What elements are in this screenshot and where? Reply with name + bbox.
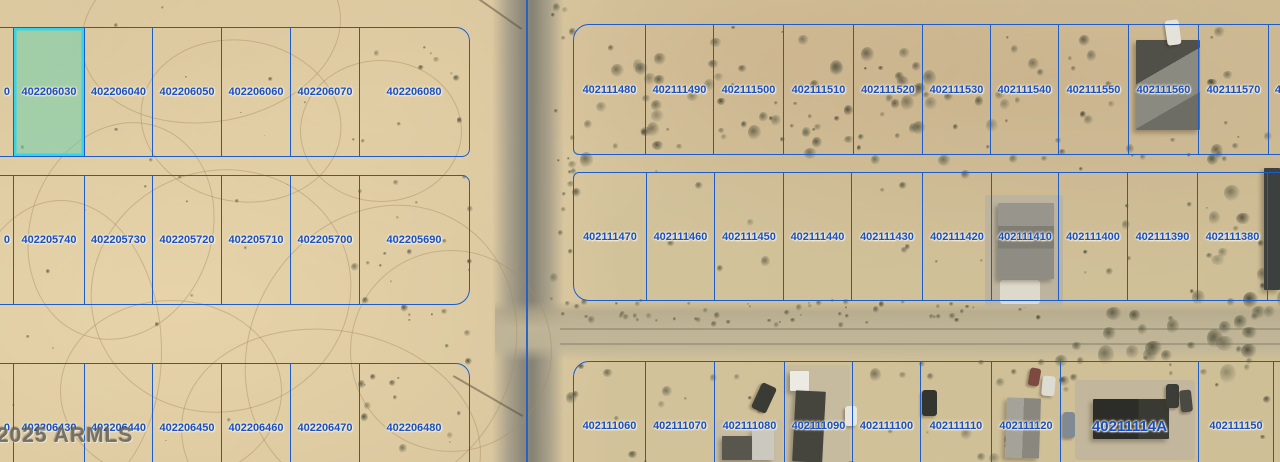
parcel-label: 402111380 <box>1198 231 1267 243</box>
parcel-402111550[interactable]: 402111550 <box>1059 25 1129 154</box>
vegetation <box>551 13 554 17</box>
vegetation <box>635 301 641 307</box>
parcel-402206060[interactable]: 402206060 <box>222 28 291 156</box>
parcel-label: 4 <box>1269 84 1280 96</box>
vegetation <box>561 207 566 212</box>
parcel-map: 0402206030402206040402206050402206060402… <box>0 0 1280 462</box>
parcel-402111560[interactable]: 402111560 <box>1129 25 1199 154</box>
parcel-label: 402205740 <box>14 234 84 246</box>
vegetation <box>623 314 629 320</box>
parcel-label: 0 <box>0 86 13 98</box>
parcel-402111110[interactable]: 402111110 <box>921 362 992 462</box>
vegetation <box>615 302 618 305</box>
vegetation <box>845 314 850 318</box>
vegetation <box>879 301 885 307</box>
parcel-402111490[interactable]: 402111490 <box>646 25 714 154</box>
vegetation <box>965 305 970 308</box>
vegetation <box>779 321 781 324</box>
vegetation <box>1138 324 1148 335</box>
vegetation <box>1161 350 1172 361</box>
parcel[interactable] <box>1274 362 1280 462</box>
vegetation <box>749 305 751 308</box>
parcel-label: 402111430 <box>852 231 922 243</box>
parcel-block-west-middle: 0402205740402205730402205720402205710402… <box>0 175 470 305</box>
parcel-label: 402206030 <box>14 86 84 98</box>
vegetation <box>726 320 730 325</box>
parcel-label: 402111080 <box>715 420 784 432</box>
parcel-label: 402206060 <box>222 86 290 98</box>
parcel-label: 402205720 <box>153 234 221 246</box>
parcel-402206070[interactable]: 402206070 <box>291 28 360 156</box>
parcel-label: 402111540 <box>991 84 1058 96</box>
vegetation <box>1167 319 1180 334</box>
parcel-402111440[interactable]: 402111440 <box>784 173 852 300</box>
parcel-402111510[interactable]: 402111510 <box>784 25 854 154</box>
parcel-label: 402111560 <box>1129 84 1198 96</box>
parcel-402111080[interactable]: 402111080 <box>715 362 785 462</box>
parcel-402111530[interactable]: 402111530 <box>923 25 991 154</box>
parcel-label: 402111070 <box>646 420 714 432</box>
parcel-402206450[interactable]: 402206450 <box>153 364 222 462</box>
vegetation <box>568 161 577 168</box>
parcel-label: 402206460 <box>222 422 290 434</box>
vegetation <box>1168 316 1174 321</box>
vegetation <box>673 317 677 320</box>
vegetation <box>1219 321 1231 334</box>
vegetation <box>838 312 842 316</box>
parcel-label: 402206480 <box>360 422 468 434</box>
selected-parcel[interactable]: 402206030 <box>14 28 85 156</box>
vegetation <box>52 347 54 349</box>
parcel-label: 402111490 <box>646 84 713 96</box>
parcel-402111500[interactable]: 402111500 <box>714 25 784 154</box>
vegetation <box>401 304 409 312</box>
parcel-label: 402205710 <box>222 234 290 246</box>
parcel-402111470[interactable]: 402111470 <box>574 173 647 300</box>
parcel-label: 402111450 <box>715 231 783 243</box>
vegetation <box>1216 336 1234 351</box>
parcel-label: 402111410 <box>992 231 1058 243</box>
vegetation <box>155 322 160 327</box>
vegetation <box>161 6 164 9</box>
parcel-402111450[interactable]: 402111450 <box>715 173 784 300</box>
vegetation <box>1009 155 1018 163</box>
parcel[interactable] <box>1268 173 1280 300</box>
parcel-label: 402205690 <box>360 234 468 246</box>
parcel-402111480[interactable]: 402111480 <box>574 25 646 154</box>
parcel-402111390[interactable]: 402111390 <box>1128 173 1198 300</box>
vegetation <box>562 192 566 196</box>
parcel-label: 0 <box>0 234 13 246</box>
parcel-402111520[interactable]: 402111520 <box>854 25 923 154</box>
parcel-402111570[interactable]: 402111570 <box>1199 25 1269 154</box>
parcel-402206460[interactable]: 402206460 <box>222 364 291 462</box>
vegetation <box>554 109 557 112</box>
parcel-label: 402206070 <box>291 86 359 98</box>
vegetation <box>464 330 472 336</box>
vegetation <box>865 321 869 325</box>
parcel-402205700[interactable]: 402205700 <box>291 176 360 304</box>
parcel-402111430[interactable]: 402111430 <box>852 173 923 300</box>
road-tire-line <box>560 343 1280 345</box>
vegetation <box>1036 315 1041 320</box>
parcel-label: 402111570 <box>1199 84 1268 96</box>
parcel-label: 402111460 <box>647 231 714 243</box>
vegetation <box>1103 327 1115 340</box>
vegetation <box>431 313 434 316</box>
vegetation <box>1106 307 1122 320</box>
parcel-402111540[interactable]: 402111540 <box>991 25 1059 154</box>
parcel-label: 402111110 <box>921 420 991 432</box>
vegetation <box>796 304 803 311</box>
parcel-402111070[interactable]: 402111070 <box>646 362 715 462</box>
parcel-label: 402111530 <box>923 84 990 96</box>
parcel-label: 402111060 <box>574 420 645 432</box>
parcel-label: 402111470 <box>574 231 646 243</box>
parcel-4[interactable]: 4 <box>1269 25 1280 154</box>
vegetation <box>565 301 569 306</box>
parcel-label: 402206050 <box>153 86 221 98</box>
parcel-label: 402206450 <box>153 422 221 434</box>
vegetation <box>1072 342 1082 349</box>
parcel-label: 402111100 <box>853 420 920 432</box>
vegetation <box>574 304 580 309</box>
parcel-402205690[interactable]: 402205690 <box>360 176 468 304</box>
parcel-label: 402205730 <box>85 234 152 246</box>
parcel-label: 402206040 <box>85 86 152 98</box>
parcel-block-east-bottom: 4021110604021110704021110804021110904021… <box>573 361 1280 462</box>
vegetation <box>1241 344 1256 358</box>
vegetation <box>696 317 701 323</box>
parcel-402111400[interactable]: 402111400 <box>1059 173 1128 300</box>
parcel-label: 402111480 <box>574 84 645 96</box>
vegetation <box>557 159 560 163</box>
parcel-402111420[interactable]: 402111420 <box>923 173 992 300</box>
parcel-402205730[interactable]: 402205730 <box>85 176 153 304</box>
parcel-label: 402111400 <box>1059 231 1127 243</box>
parcel-label: 402111520 <box>854 84 922 96</box>
parcel-0[interactable]: 0 <box>0 28 14 156</box>
parcel-402205710[interactable]: 402205710 <box>222 176 291 304</box>
vegetation <box>839 324 843 327</box>
parcel-label: 402111150 <box>1199 420 1273 432</box>
parcel-label: 402205700 <box>291 234 359 246</box>
parcel-label: 402111420 <box>923 231 991 243</box>
vegetation <box>149 158 153 162</box>
vegetation <box>561 312 566 316</box>
parcel-402111410[interactable]: 402111410 <box>992 173 1059 300</box>
vegetation <box>1079 167 1083 170</box>
vegetation <box>561 36 565 40</box>
parcel-402111380[interactable]: 402111380 <box>1198 173 1268 300</box>
parcel-label: 402111440 <box>784 231 851 243</box>
parcel-402111060[interactable]: 402111060 <box>574 362 646 462</box>
vegetation <box>1187 342 1197 350</box>
parcel-label: 402206080 <box>360 86 468 98</box>
vegetation <box>655 319 658 322</box>
parcel-label: 402206470 <box>291 422 359 434</box>
parcel-402111100[interactable]: 402111100 <box>853 362 921 462</box>
parcel-402111460[interactable]: 402111460 <box>647 173 715 300</box>
vegetation <box>960 309 964 314</box>
parcel-40211114A[interactable]: 40211114A <box>1061 362 1199 462</box>
parcel-label: 402111120 <box>992 420 1060 432</box>
vegetation <box>441 309 448 314</box>
parcel-label: 402111500 <box>714 84 783 96</box>
parcel-block-east-top: 4021114804021114904021115004021115104021… <box>573 24 1280 155</box>
parcel-402206080[interactable]: 402206080 <box>360 28 468 156</box>
parcel-label: 402111390 <box>1128 231 1197 243</box>
boundary-line <box>526 0 528 462</box>
parcel-label: 402111550 <box>1059 84 1128 96</box>
parcel-402206480[interactable]: 402206480 <box>360 364 468 462</box>
parcel-block-east-middle: 4021114704021114604021114504021114404021… <box>573 172 1280 301</box>
vegetation <box>445 344 449 348</box>
parcel-402111090[interactable]: 402111090 <box>785 362 853 462</box>
parcel-402205740[interactable]: 402205740 <box>14 176 85 304</box>
vegetation <box>687 302 691 305</box>
parcel-label: 402111510 <box>784 84 853 96</box>
watermark: 2025 ARMLS <box>0 424 133 448</box>
parcel-label: 40211114A <box>1061 418 1198 435</box>
parcel-0[interactable]: 0 <box>0 176 14 304</box>
parcel-label: 402111090 <box>785 420 852 432</box>
vegetation <box>714 312 720 319</box>
vegetation <box>1252 306 1266 318</box>
vegetation <box>784 310 790 315</box>
vegetation <box>1264 306 1274 319</box>
parcel-402206040[interactable]: 402206040 <box>85 28 153 156</box>
vegetation <box>954 318 960 322</box>
parcel-402206470[interactable]: 402206470 <box>291 364 360 462</box>
parcel-402111150[interactable]: 402111150 <box>1199 362 1274 462</box>
vegetation <box>1222 156 1227 162</box>
parcel-block-west-top: 0402206030402206040402206050402206060402… <box>0 27 470 157</box>
parcel-402206050[interactable]: 402206050 <box>153 28 222 156</box>
parcel-402111120[interactable]: 402111120 <box>992 362 1061 462</box>
vegetation <box>567 157 570 160</box>
parcel-402205720[interactable]: 402205720 <box>153 176 222 304</box>
